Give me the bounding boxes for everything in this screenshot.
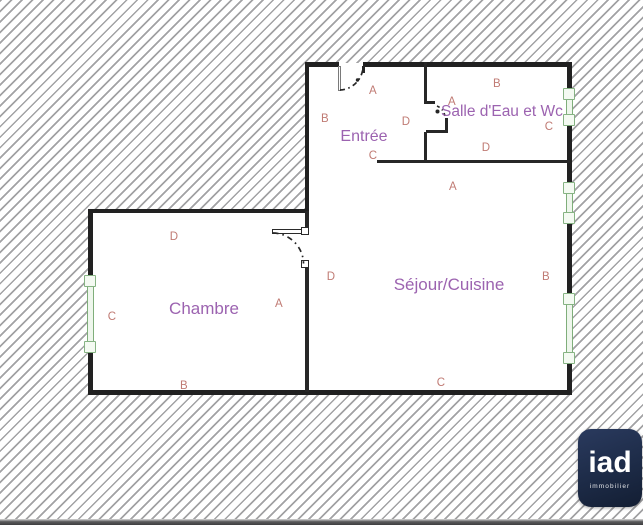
wall-hall-bottom — [377, 160, 570, 163]
room-label-chambre: Chambre — [169, 299, 239, 319]
wall-divider-entree-salle-upper — [424, 62, 427, 104]
entrance-door-jamb-tick — [362, 66, 365, 73]
wall-letter-chambre-bottom: B — [180, 380, 188, 392]
wall-letter-entree-bottom: C — [369, 150, 378, 162]
wall-divider-chambre-sejour-lower — [305, 266, 309, 392]
window-sejour-lower-cap-top — [563, 293, 575, 305]
window-chambre — [87, 281, 94, 347]
wall-letter-chambre-top: D — [170, 231, 179, 243]
entrance-door-leaf — [338, 66, 342, 91]
wall-letter-entree-left: B — [321, 113, 329, 125]
wall-bottom — [88, 390, 572, 395]
window-sejour-lower-cap-bottom — [563, 352, 575, 364]
chambre-door-hinge-cap — [301, 227, 309, 235]
iad-logo-brand: iad — [588, 448, 631, 478]
window-sejour-upper-cap-bottom — [563, 212, 575, 224]
iad-logo: iad immobilier — [578, 429, 642, 507]
wall-letter-entree-top: A — [369, 85, 377, 97]
wall-letter-sejour-right: B — [542, 271, 550, 283]
salle-eau-door-hook — [424, 101, 435, 104]
wall-entree-left — [305, 62, 309, 213]
room-label-entree: Entrée — [340, 128, 387, 146]
wall-letter-entree-right: D — [402, 116, 411, 128]
salle-eau-door-leaf-v — [445, 118, 448, 133]
window-salle-eau-cap-top — [563, 88, 575, 100]
wall-letter-sejour-left: D — [327, 271, 336, 283]
room-label-sejour: Séjour/Cuisine — [394, 275, 505, 295]
wall-letter-sejour-bottom: C — [437, 377, 446, 389]
wall-top-right-segment — [363, 62, 572, 67]
bottom-edge-bar — [0, 519, 643, 525]
wall-divider-entree-salle-lower — [424, 132, 427, 163]
wall-letter-sejour-top: A — [449, 181, 457, 193]
iad-logo-tagline: immobilier — [590, 483, 631, 490]
wall-letter-salle-eau-top: B — [493, 78, 501, 90]
wall-letter-salle-eau-right: C — [545, 121, 554, 133]
window-chambre-cap-top — [84, 275, 96, 287]
chambre-door-jamb-cap — [301, 260, 309, 268]
wall-chambre-top — [88, 209, 309, 213]
floorplan-canvas: A B D C B A C D A D B C D C A B Entrée S… — [0, 0, 643, 525]
wall-letter-chambre-left: C — [108, 311, 117, 323]
window-chambre-cap-bottom — [84, 341, 96, 353]
wall-letter-salle-eau-bottom: D — [482, 142, 491, 154]
window-sejour-lower — [566, 299, 573, 358]
window-sejour-upper-cap-top — [563, 182, 575, 194]
wall-letter-chambre-right: A — [275, 298, 283, 310]
room-label-salle-eau: Salle d'Eau et Wc — [441, 104, 569, 120]
wall-top-left-segment — [305, 62, 339, 67]
